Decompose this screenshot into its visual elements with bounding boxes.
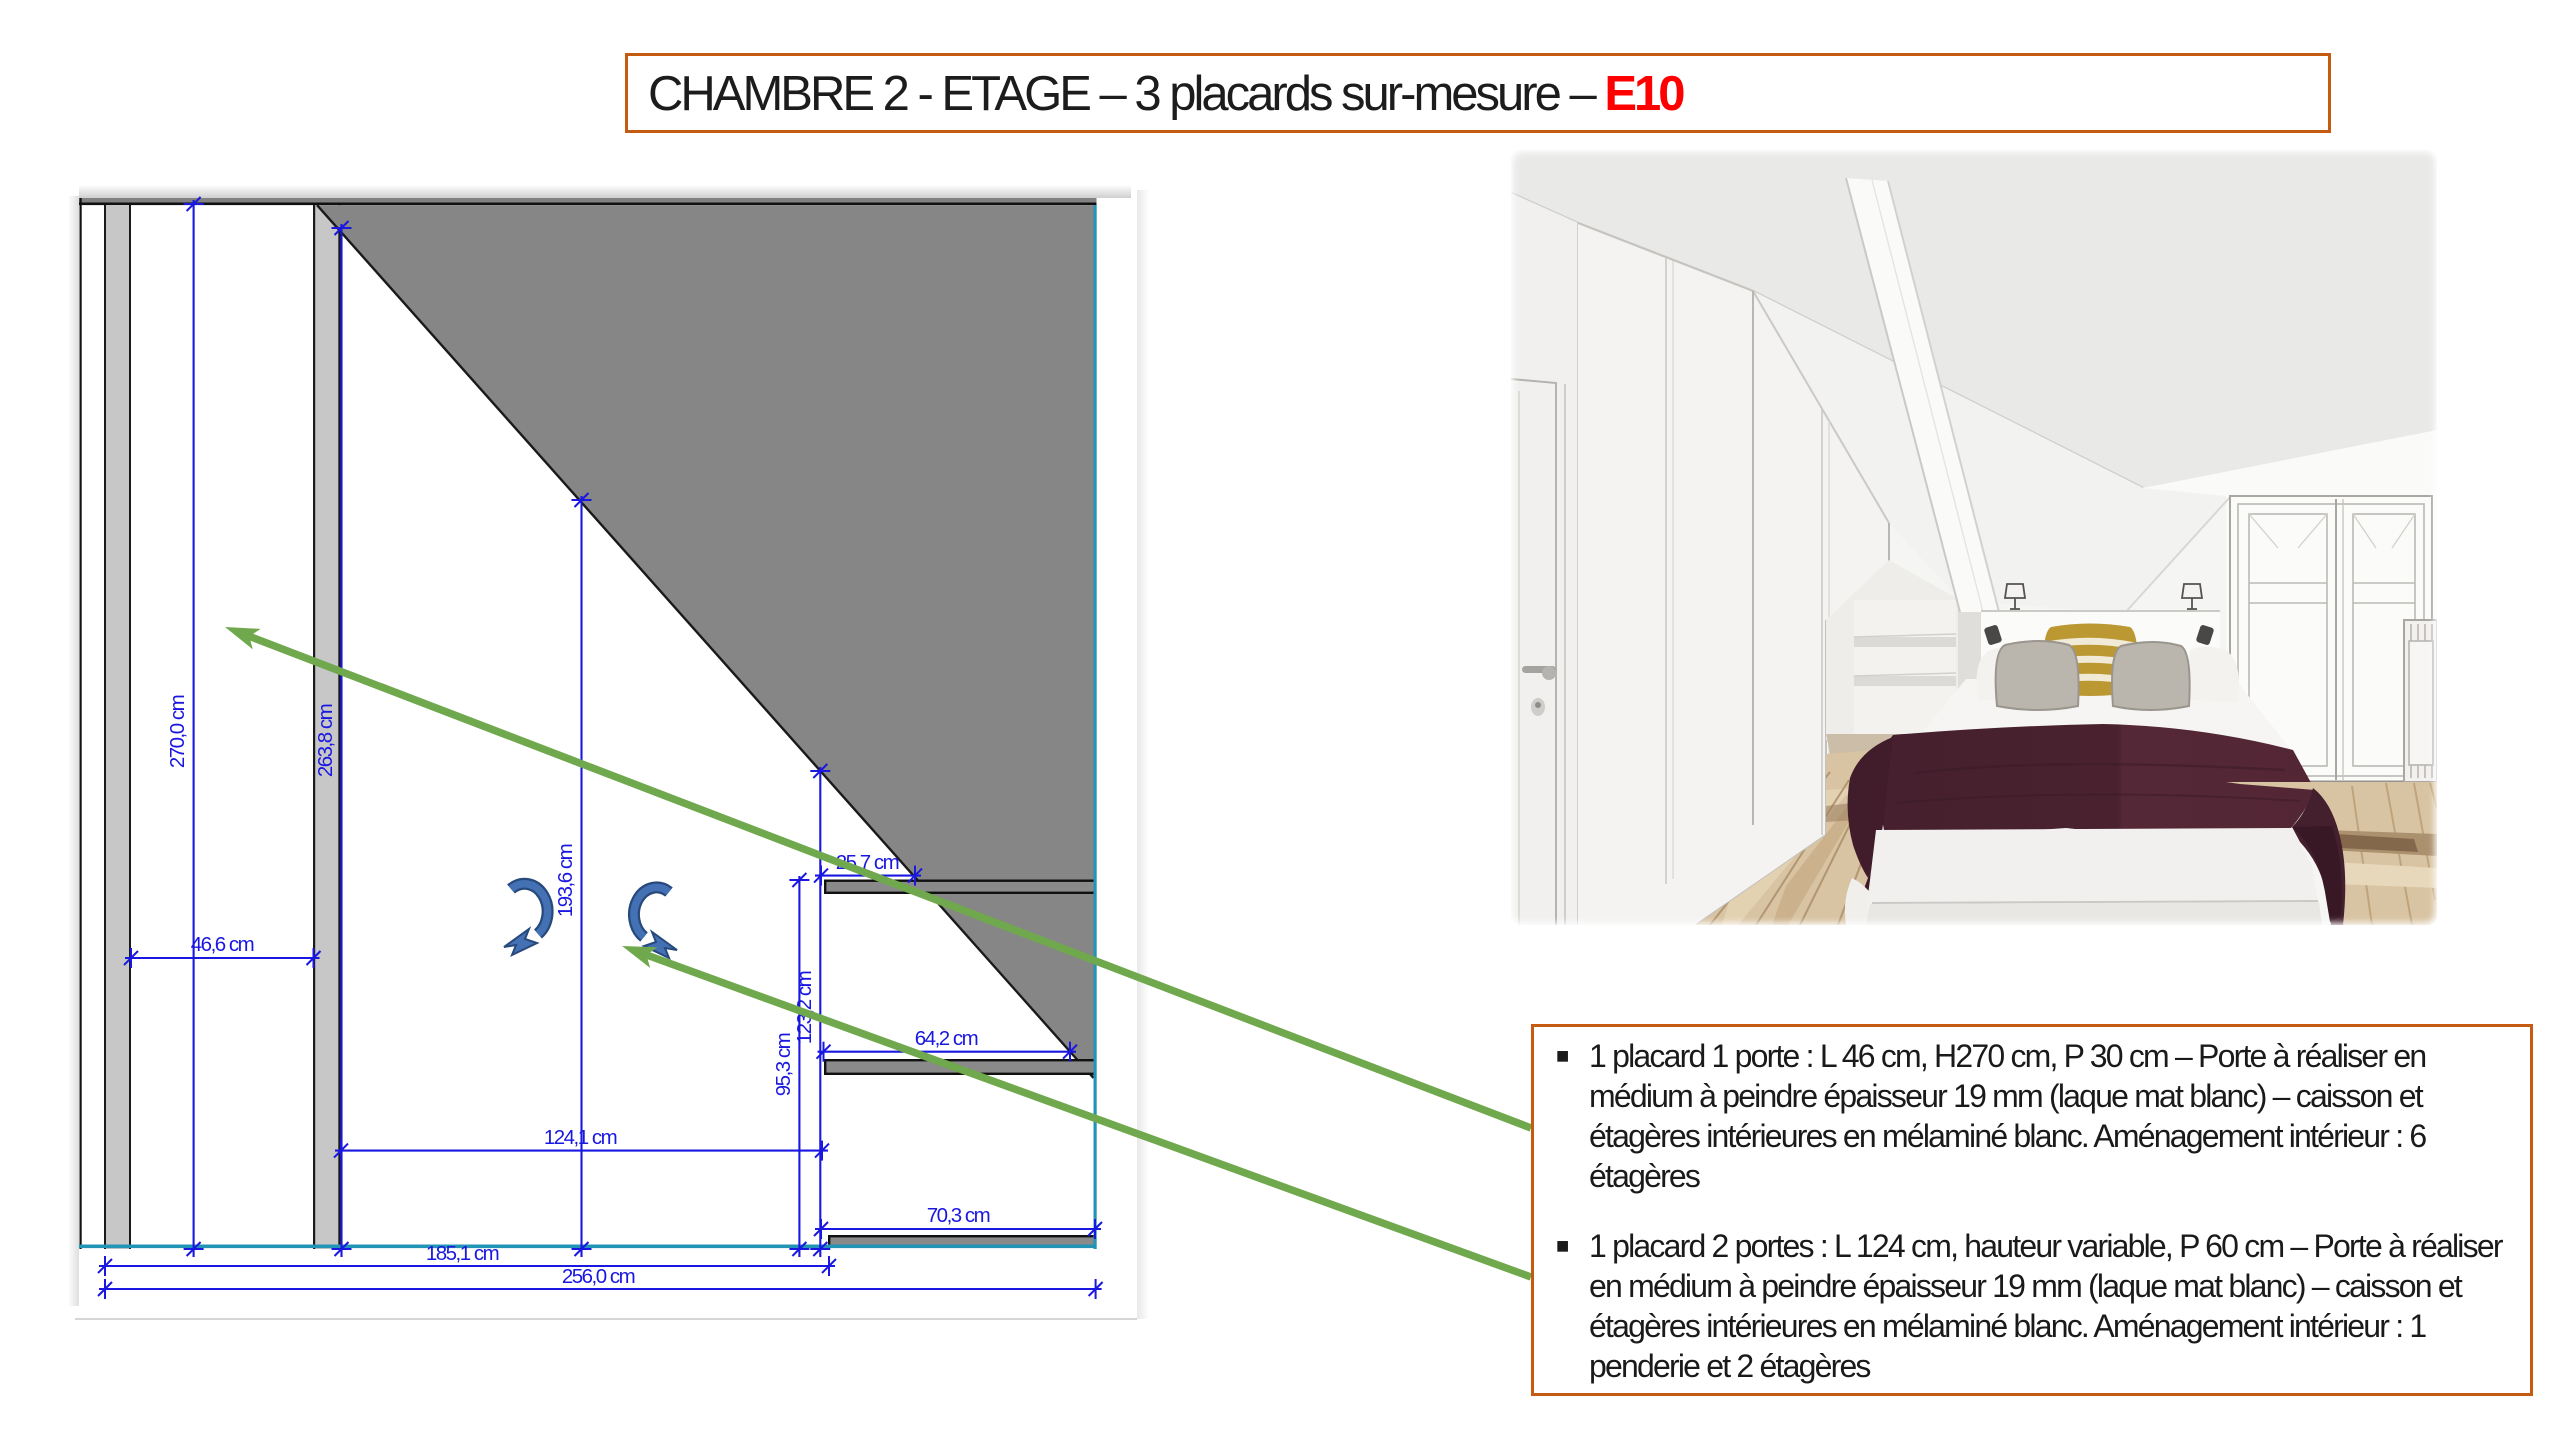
svg-text:270,0 cm: 270,0 cm: [166, 695, 189, 768]
svg-text:46,6 cm: 46,6 cm: [191, 933, 254, 956]
svg-text:185,1 cm: 185,1 cm: [426, 1242, 499, 1265]
svg-text:64,2 cm: 64,2 cm: [915, 1027, 978, 1050]
svg-text:193,6 cm: 193,6 cm: [554, 844, 577, 917]
svg-text:256,0 cm: 256,0 cm: [562, 1265, 635, 1288]
svg-text:70,3 cm: 70,3 cm: [927, 1204, 990, 1227]
svg-text:263,8 cm: 263,8 cm: [314, 704, 337, 777]
svg-text:95,3 cm: 95,3 cm: [772, 1033, 795, 1096]
svg-text:124,1 cm: 124,1 cm: [544, 1126, 617, 1149]
